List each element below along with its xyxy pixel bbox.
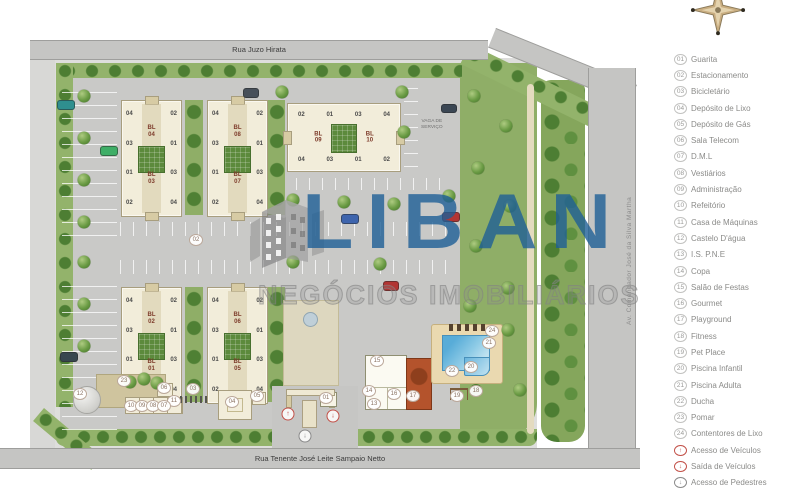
legend-item: 09 Administração [674, 181, 806, 197]
legend-item: 10 Refeitório [674, 198, 806, 214]
legend-item-number: 24 [674, 428, 687, 439]
legend-item-label: Fitness [691, 332, 717, 341]
trash-depot-building [218, 390, 252, 420]
garden-strip [185, 100, 203, 215]
legend-item-label: I.S. P.N.E [691, 250, 725, 259]
road-bottom-label: Rua Tenente José Leite Sampaio Netto [0, 449, 640, 468]
parking-stalls [62, 92, 117, 240]
gate-beam [286, 389, 335, 396]
legend-item-number: 07 [674, 151, 687, 162]
road-right-label: Av. Comendador José da Silva Martha [626, 68, 633, 453]
legend-item-label: Copa [691, 267, 710, 276]
block-label: BL 04 [122, 125, 181, 138]
unit-number: 02 [170, 111, 177, 117]
legend-item: ↑ Acesso de Veículos [674, 442, 806, 458]
legend-item-number: 05 [674, 119, 687, 130]
building-slab-bl08-bl07: 04030102 02010304 BL 08 BL 07 [207, 100, 268, 217]
legend-item: 06 Sala Telecom [674, 132, 806, 148]
unit-number: 03 [212, 328, 219, 334]
pool-deck [431, 324, 503, 384]
legend-item-label: Saída de Veículos [691, 462, 756, 471]
legend-item-label: Depósito de Gás [691, 120, 751, 129]
legend-item-number: 01 [674, 54, 687, 65]
unit-number: 02 [126, 200, 133, 206]
service-parking-label: VAGA DE SERVIÇO [419, 119, 445, 130]
legend-item-number: 17 [674, 314, 687, 325]
pergola [449, 324, 485, 331]
legend-item: 15 Salão de Festas [674, 279, 806, 295]
unit-number: 02 [256, 111, 263, 117]
parking-stalls [296, 178, 446, 190]
legend-item-label: Playground [691, 315, 731, 324]
legend-item-number: 14 [674, 266, 687, 277]
legend-item-number: 23 [674, 412, 687, 423]
legend-item-number: 11 [674, 217, 687, 228]
legend-item-number: 22 [674, 396, 687, 407]
legend-item-label: Guarita [691, 55, 717, 64]
site-plan-page: Rua Juzo Hirata Av. Comendador José da S… [0, 0, 810, 490]
legend-item: 08 Vestiários [674, 165, 806, 181]
gate-island [302, 400, 317, 428]
block-label: BL 10 [366, 131, 374, 144]
legend-item-label: Castelo D'água [691, 234, 745, 243]
unit-number: 03 [326, 157, 333, 163]
legend-item-number: 21 [674, 380, 687, 391]
legend-item: 22 Ducha [674, 393, 806, 409]
legend-item-label: Casa de Máquinas [691, 218, 758, 227]
unit-numbers-row: 02010304 [298, 112, 390, 118]
legend-item-number: ↓ [674, 477, 687, 488]
block-label: BL 09 [314, 131, 322, 144]
legend-item: 16 Gourmet [674, 295, 806, 311]
east-footpath [527, 84, 534, 434]
unit-numbers-row: 04030102 [298, 157, 390, 163]
block-label: BL 07 [208, 172, 267, 185]
building-slab-bl06-bl05: 04030102 02010304 BL 06 BL 05 [207, 287, 268, 404]
unit-number: 04 [212, 298, 219, 304]
road-bottom: Rua Tenente José Leite Sampaio Netto [0, 448, 640, 469]
legend-item-label: Acesso de Pedestres [691, 478, 767, 487]
legend-item-number: 10 [674, 200, 687, 211]
unit-number: 04 [298, 157, 305, 163]
road-right-avenue: Av. Comendador José da Silva Martha [588, 68, 636, 453]
legend-item-number: 19 [674, 347, 687, 358]
avenue-green-median [541, 80, 585, 442]
water-tower [73, 386, 101, 414]
legend-item-label: Pomar [691, 413, 715, 422]
legend-item-number: 03 [674, 86, 687, 97]
legend-item: 21 Piscina Adulta [674, 377, 806, 393]
building-slab-bl04-bl03: 04030102 02010304 BL 04 BL 03 [121, 100, 182, 217]
legend-item-number: 06 [674, 135, 687, 146]
legend-item-label: Piscina Infantil [691, 364, 743, 373]
unit-number: 03 [355, 112, 362, 118]
unit-number: 03 [126, 328, 133, 334]
unit-number: 02 [383, 157, 390, 163]
legend-item-label: Administração [691, 185, 742, 194]
block-label: BL 08 [208, 125, 267, 138]
bike-rack [180, 396, 208, 403]
legend-item-number: 18 [674, 331, 687, 342]
legend-item: 11 Casa de Máquinas [674, 214, 806, 230]
playground-area [406, 358, 432, 410]
legend-item: 23 Pomar [674, 410, 806, 426]
legend-item-number: 15 [674, 282, 687, 293]
unit-number: 01 [256, 141, 263, 147]
swing-equipment-icon [450, 388, 468, 400]
legend-item-number: 12 [674, 233, 687, 244]
unit-number: 01 [170, 141, 177, 147]
block-label: BL 03 [122, 172, 181, 185]
kids-pool [464, 357, 490, 376]
unit-number: 01 [170, 328, 177, 334]
legend-item-label: Acesso de Veículos [691, 446, 761, 455]
party-hall-building [365, 355, 407, 410]
legend-item-label: Depósito de Lixo [691, 104, 751, 113]
legend-item: 07 D.M.L [674, 149, 806, 165]
legend-item-number: ↓ [674, 461, 687, 472]
building-courtyard [331, 124, 358, 153]
tree-verge-top [60, 63, 462, 78]
block-label: BL 01 [122, 359, 181, 372]
legend-item-label: Bicicletário [691, 87, 730, 96]
legend-item-label: Ducha [691, 397, 714, 406]
legend-item: 14 Copa [674, 263, 806, 279]
legend-item-number: 16 [674, 298, 687, 309]
legend-item-number: 09 [674, 184, 687, 195]
legend-item: 12 Castelo D'água [674, 230, 806, 246]
unit-number: 04 [383, 112, 390, 118]
legend-item: 24 Contentores de Lixo [674, 426, 806, 442]
building-courtyard [224, 146, 251, 173]
block-label: BL 02 [122, 312, 181, 325]
compass-icon [690, 0, 746, 40]
legend-item-label: Contentores de Lixo [691, 429, 763, 438]
unit-number: 04 [126, 298, 133, 304]
legend-item: 02 Estacionamento [674, 67, 806, 83]
gate-post [286, 394, 292, 408]
garden-strip [268, 100, 285, 215]
unit-number: 02 [256, 298, 263, 304]
legend-item-number: 04 [674, 103, 687, 114]
unit-number: 03 [212, 141, 219, 147]
legend-item: 03 Bicicletário [674, 84, 806, 100]
unit-number: 02 [298, 112, 305, 118]
road-top-label: Rua Juzo Hirata [30, 41, 488, 59]
legend-item-number: 02 [674, 70, 687, 81]
legend-item-number: ↑ [674, 445, 687, 456]
parking-stalls [120, 260, 450, 274]
unit-number: 03 [126, 141, 133, 147]
legend-item: ↓ Saída de Veículos [674, 458, 806, 474]
legend-item-number: 13 [674, 249, 687, 260]
unit-number: 04 [256, 200, 263, 206]
unit-number: 01 [256, 328, 263, 334]
unit-number: 04 [126, 111, 133, 117]
service-rooms [125, 397, 183, 414]
legend-item-label: Pet Place [691, 348, 725, 357]
block-label: BL 06 [208, 312, 267, 325]
legend-item: 18 Fitness [674, 328, 806, 344]
building-courtyard [224, 333, 251, 360]
sidewalk-left [30, 58, 57, 449]
legend-item: 04 Depósito de Lixo [674, 100, 806, 116]
legend-item: 20 Piscina Infantil [674, 361, 806, 377]
parking-stalls [404, 88, 418, 174]
legend-item: 01 Guarita [674, 51, 806, 67]
block-label: BL 05 [208, 359, 267, 372]
legend-item: ↓ Acesso de Pedestres [674, 475, 806, 490]
legend-item-number: 08 [674, 168, 687, 179]
unit-number: 02 [170, 298, 177, 304]
legend-item-label: Salão de Festas [691, 283, 749, 292]
legend-item-label: Sala Telecom [691, 136, 739, 145]
building-slab-bl09-bl10: 02010304 04030102 BL 09 BL 10 [287, 103, 401, 172]
unit-number: 04 [212, 111, 219, 117]
telecom-room [157, 383, 173, 397]
road-top: Rua Juzo Hirata [30, 40, 488, 60]
legend-item-label: Refeitório [691, 201, 725, 210]
legend-item-label: Gourmet [691, 299, 722, 308]
building-courtyard [138, 333, 165, 360]
unit-number: 01 [355, 157, 362, 163]
shrub-icon [470, 384, 482, 396]
legend-item-label: Estacionamento [691, 71, 748, 80]
fountain [303, 312, 318, 327]
unit-number: 01 [326, 112, 333, 118]
unit-number: 02 [212, 200, 219, 206]
legend-item-label: D.M.L [691, 152, 712, 161]
parking-stalls [120, 222, 450, 236]
legend-item-label: Vestiários [691, 169, 726, 178]
building-courtyard [138, 146, 165, 173]
legend-item: 13 I.S. P.N.E [674, 247, 806, 263]
legend-item: 05 Depósito de Gás [674, 116, 806, 132]
interior-wall [387, 387, 388, 409]
trash-depot-inner [227, 398, 243, 412]
unit-number: 04 [170, 200, 177, 206]
gas-depot [252, 392, 266, 405]
legend-item-label: Piscina Adulta [691, 381, 741, 390]
garden-strip [185, 287, 203, 402]
legend-panel: 01 Guarita 02 Estacionamento 03 Biciclet… [674, 51, 806, 490]
legend-item: 19 Pet Place [674, 344, 806, 360]
legend-item-number: 20 [674, 363, 687, 374]
legend-item: 17 Playground [674, 312, 806, 328]
